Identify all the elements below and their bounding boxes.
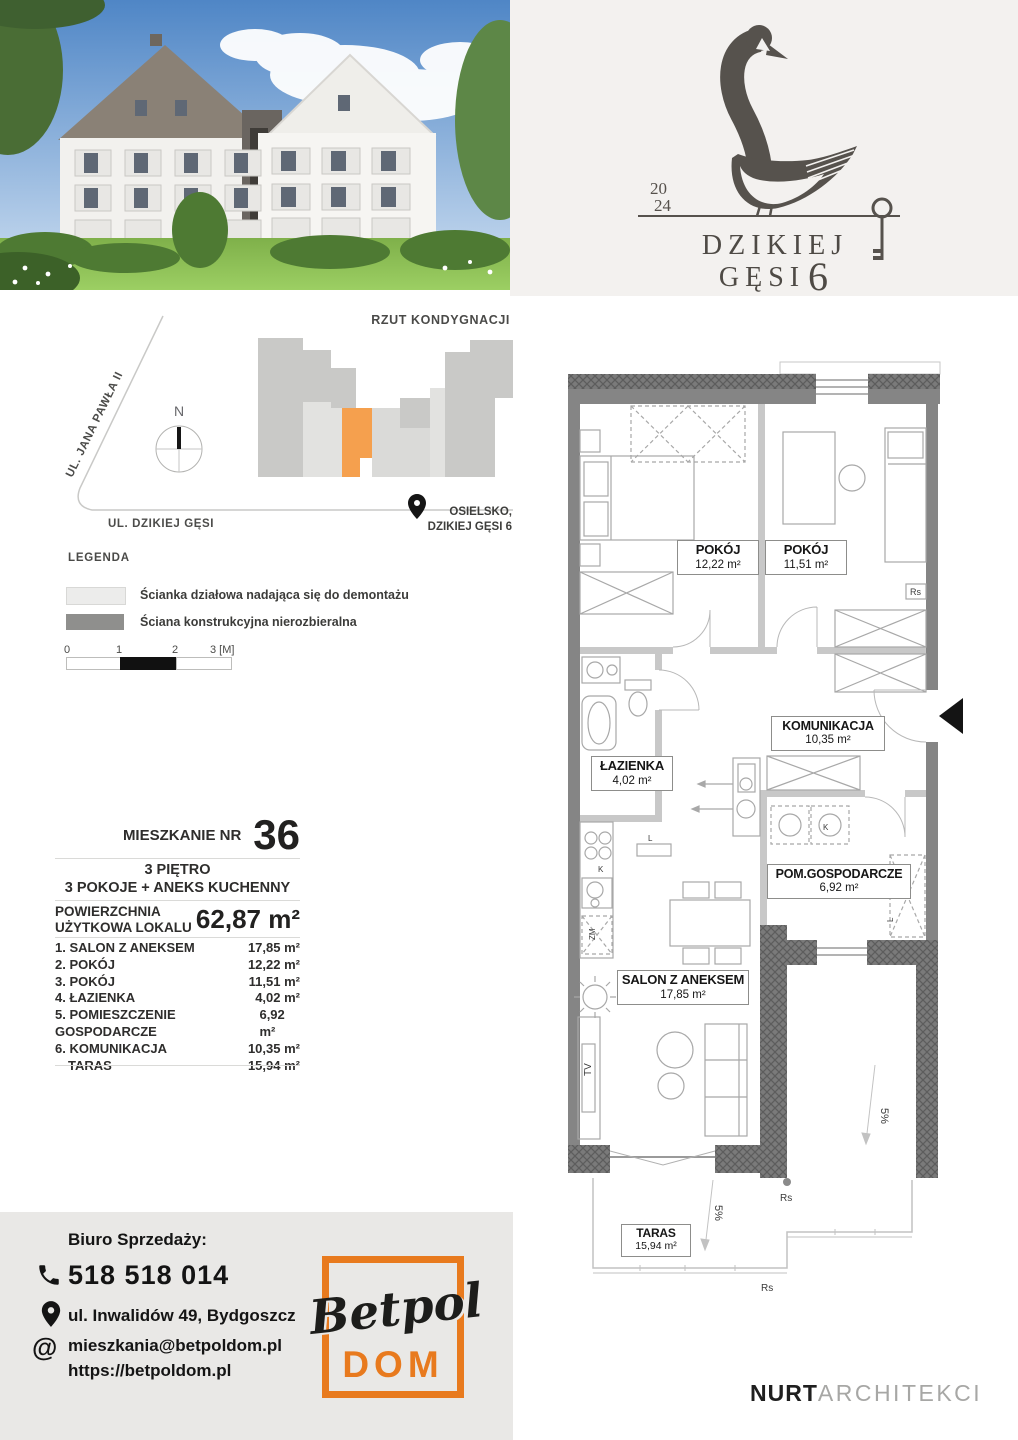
logo-number: 6 (808, 254, 828, 296)
architect-logo: NURTARCHITEKCI (750, 1380, 982, 1407)
legend-label-structural: Ściana konstrukcyjna nierozbieralna (140, 615, 470, 629)
room-label: 6. KOMUNIKACJA (55, 1041, 167, 1058)
legend-title: LEGENDA (68, 552, 130, 564)
room-area: 12,22 m² (248, 957, 300, 974)
room-area: 6,92 m² (259, 1007, 300, 1041)
counter-label-kitchen: L (648, 834, 653, 843)
rs-marker-dot (783, 1178, 791, 1186)
room-area: 4,02 m² (595, 775, 669, 788)
room-name: TARAS (625, 1227, 687, 1240)
room-name: POKÓJ (769, 543, 843, 558)
email-address[interactable]: mieszkania@betpoldom.pl (68, 1336, 282, 1356)
counter-label-utility: L (886, 917, 895, 922)
room-list-row: 3. POKÓJ 11,51 m² (55, 974, 300, 991)
goose-logo: 20 24 DZIKIEJ GĘSI 6 (510, 0, 1018, 296)
architect-name-light: ARCHITEKCI (818, 1380, 982, 1406)
room-area: 6,92 m² (771, 882, 907, 895)
scale-tick-3: 3 [M] (210, 644, 234, 656)
apartment-layout: 3 POKOJE + ANEKS KUCHENNY (55, 880, 300, 896)
goose-icon (732, 25, 857, 216)
room-label-taras: TARAS 15,94 m² (621, 1224, 691, 1257)
logo-year-bottom: 24 (654, 196, 672, 215)
location-label: OSIELSKO, DZIKIEJ GĘSI 6 (420, 505, 512, 535)
room-area: 11,51 m² (769, 559, 843, 572)
apartment-floor: 3 PIĘTRO (55, 862, 300, 878)
legend-swatch-structural (66, 614, 124, 630)
phone-icon (36, 1262, 62, 1288)
area-label-line2: UŻYTKOWA LOKALU (55, 920, 192, 936)
apartment-number: 36 (253, 814, 300, 856)
room-area: 15,94 m² (625, 1241, 687, 1253)
architect-name-bold: NURT (750, 1380, 818, 1406)
scale-seg-1 (66, 657, 122, 670)
room-label-komunikacja: KOMUNIKACJA 10,35 m² (771, 716, 885, 751)
room-name: SALON Z ANEKSEM (621, 973, 745, 988)
divider (55, 858, 300, 859)
scale-tick-2: 2 (172, 644, 178, 656)
room-label: 1. SALON Z ANEKSEM (55, 940, 195, 957)
room-label: 4. ŁAZIENKA (55, 990, 135, 1007)
logo-name-line2: GĘSI (719, 262, 805, 293)
divider (55, 937, 300, 938)
legend-label-partition: Ścianka działowa nadająca się do demonta… (140, 588, 470, 602)
room-list: 1. SALON Z ANEKSEM 17,85 m² 2. POKÓJ 12,… (55, 940, 300, 1074)
entrance-arrow-icon (939, 698, 963, 734)
highlighted-unit[interactable] (342, 408, 372, 477)
compass-icon (154, 424, 204, 474)
sales-office-label: Biuro Sprzedaży: (68, 1230, 207, 1250)
rs-label-terrace: Rs (780, 1193, 792, 1204)
legend-swatch-partition (66, 587, 126, 605)
betpol-logo-dom: DOM (330, 1344, 456, 1386)
room-area: 10,35 m² (775, 734, 881, 747)
rs-label-wall: Rs (910, 587, 921, 597)
apartment-header: MIESZKANIE NR 36 (55, 814, 300, 856)
stove-label: K (598, 865, 604, 874)
room-list-row: 6. KOMUNIKACJA 10,35 m² (55, 1041, 300, 1058)
flyer-page: 20 24 DZIKIEJ GĘSI 6 (0, 0, 1018, 1440)
room-label: 5. POMIESZCZENIE GOSPODARCZE (55, 1007, 259, 1041)
room-area: 12,22 m² (681, 559, 755, 572)
apartment-number-label: MIESZKANIE NR (123, 827, 241, 844)
divider (55, 1065, 300, 1066)
floor-plan-drawing: Rs Rs Rs 5% 5% TV K K ZM ZM L L (555, 360, 1018, 1300)
compass-north-label: N (155, 403, 203, 419)
area-label-line1: POWIERZCHNIA (55, 904, 192, 920)
room-label-pokoj-1: POKÓJ 12,22 m² (677, 540, 759, 575)
apartment-area-value: 62,87 m² (196, 904, 300, 935)
room-area: 4,02 m² (255, 990, 300, 1007)
room-area: 17,85 m² (621, 989, 745, 1002)
apartment-area-label: POWIERZCHNIA UŻYTKOWA LOKALU (55, 904, 192, 935)
apartment-area-row: POWIERZCHNIA UŻYTKOWA LOKALU 62,87 m² (55, 904, 300, 935)
scale-tick-1: 1 (116, 644, 122, 656)
room-area: 17,85 m² (248, 940, 300, 957)
room-name: POM.GOSPODARCZE (771, 867, 907, 881)
scale-seg-3 (176, 657, 232, 670)
room-area: 10,35 m² (248, 1041, 300, 1058)
key-icon (873, 199, 891, 260)
windows (75, 148, 410, 244)
room-label: 3. POKÓJ (55, 974, 115, 991)
floor-plan: Rs Rs Rs 5% 5% TV K K ZM ZM L L POKÓJ 12… (555, 360, 1018, 1300)
phone-number[interactable]: 518 518 014 (68, 1260, 229, 1291)
street-label-dzikiej-gesi: UL. DZIKIEJ GĘSI (108, 518, 238, 530)
scale-seg-2 (120, 657, 178, 670)
at-icon: @ (32, 1332, 57, 1363)
tv-label: TV (583, 1063, 594, 1076)
room-label: 2. POKÓJ (55, 957, 115, 974)
room-name: KOMUNIKACJA (775, 719, 881, 733)
room-list-row: 1. SALON Z ANEKSEM 17,85 m² (55, 940, 300, 957)
room-list-row: 4. ŁAZIENKA 4,02 m² (55, 990, 300, 1007)
room-label-pom-gospodarcze: POM.GOSPODARCZE 6,92 m² (767, 864, 911, 899)
location-line2: DZIKIEJ GĘSI 6 (420, 520, 512, 535)
scale-tick-0: 0 (64, 644, 70, 656)
room-name: ŁAZIENKA (595, 759, 669, 774)
site-plan-map (40, 300, 515, 540)
divider (55, 900, 300, 901)
fridge-label-kitchen: ZM (588, 928, 597, 940)
office-address: ul. Inwalidów 49, Bydgoszcz (68, 1306, 296, 1326)
slope-label-terrace: 5% (712, 1205, 724, 1221)
room-list-row: 5. POMIESZCZENIE GOSPODARCZE 6,92 m² (55, 1007, 300, 1041)
room-area: 11,51 m² (249, 974, 300, 991)
scale-bar: 0 1 2 3 [M] (64, 644, 244, 674)
slope-label-court: 5% (878, 1108, 890, 1124)
room-label-salon: SALON Z ANEKSEM 17,85 m² (617, 970, 749, 1005)
building-footprint (258, 338, 513, 477)
room-list-row: 2. POKÓJ 12,22 m² (55, 957, 300, 974)
building-photo (0, 0, 510, 290)
partition-walls (580, 404, 926, 925)
website-url[interactable]: https://betpoldom.pl (68, 1361, 231, 1381)
room-name: POKÓJ (681, 543, 755, 558)
rs-label-bottom: Rs (761, 1283, 773, 1294)
logo-band: 20 24 DZIKIEJ GĘSI 6 (510, 0, 1018, 296)
room-label-pokoj-2: POKÓJ 11,51 m² (765, 540, 847, 575)
washer-label: K (823, 823, 829, 832)
address-pin-icon (40, 1300, 62, 1328)
room-label-lazienka: ŁAZIENKA 4,02 m² (591, 756, 673, 791)
location-line1: OSIELSKO, (420, 505, 512, 520)
